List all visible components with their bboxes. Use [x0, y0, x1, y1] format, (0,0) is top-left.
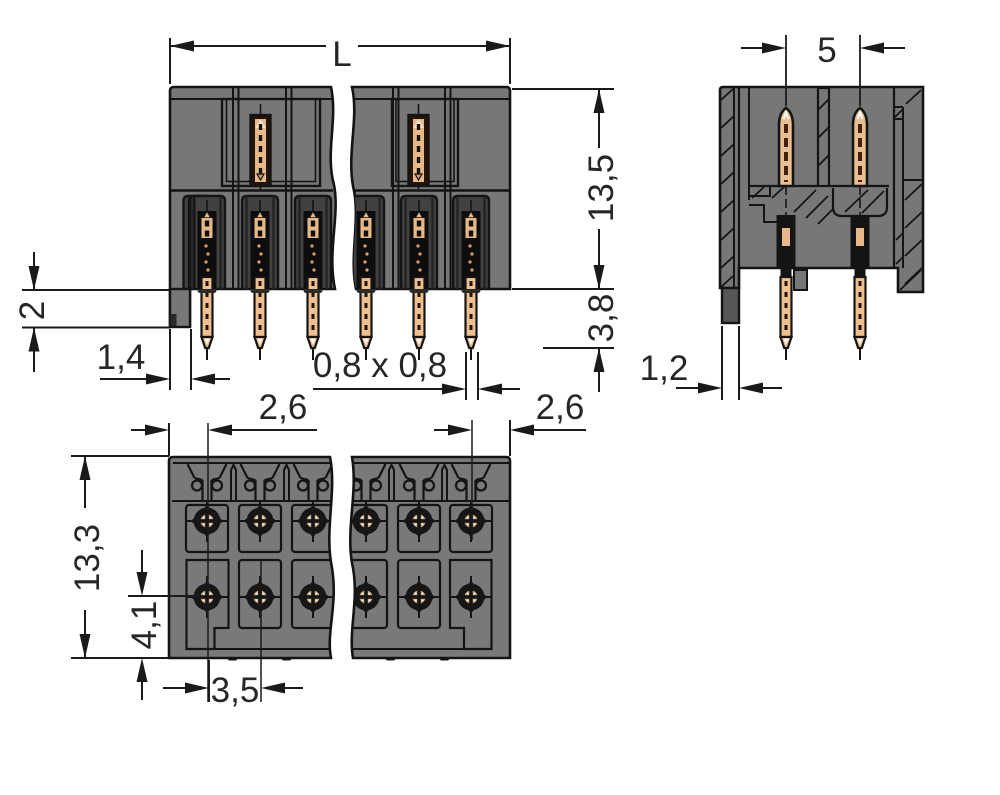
svg-text:13,3: 13,3	[68, 524, 107, 592]
svg-text:5: 5	[817, 31, 836, 70]
svg-text:1,2: 1,2	[640, 349, 689, 388]
svg-text:2,6: 2,6	[259, 388, 308, 427]
svg-text:2: 2	[13, 301, 52, 320]
svg-text:2,6: 2,6	[536, 388, 585, 427]
svg-text:13,5: 13,5	[582, 154, 621, 222]
svg-text:L: L	[332, 35, 351, 74]
svg-text:0,8 x 0,8: 0,8 x 0,8	[313, 346, 447, 385]
svg-text:4,1: 4,1	[125, 601, 164, 650]
svg-text:1,4: 1,4	[97, 338, 146, 377]
svg-text:3,5: 3,5	[211, 671, 260, 710]
svg-text:3,8: 3,8	[582, 294, 621, 343]
